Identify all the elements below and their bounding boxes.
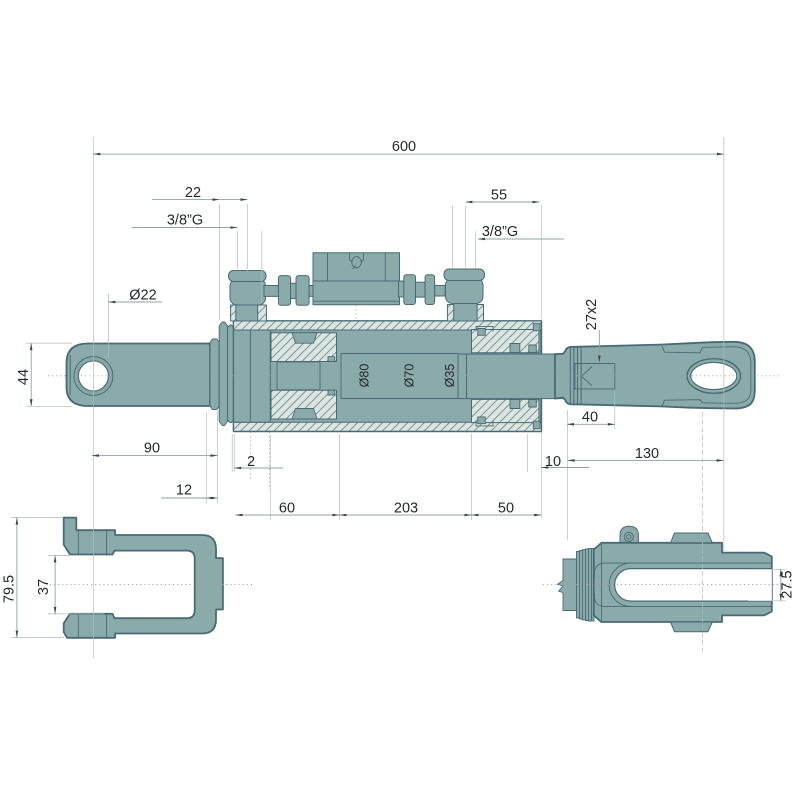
svg-text:22: 22 [185, 185, 201, 201]
svg-text:44: 44 [16, 369, 32, 385]
svg-text:2: 2 [247, 454, 255, 470]
svg-text:3/8”G: 3/8”G [482, 224, 518, 240]
svg-text:600: 600 [392, 139, 416, 155]
svg-text:27.5: 27.5 [780, 570, 796, 598]
svg-text:130: 130 [635, 446, 659, 462]
svg-text:79.5: 79.5 [2, 575, 18, 603]
svg-text:40: 40 [582, 410, 598, 426]
svg-text:203: 203 [394, 501, 418, 517]
svg-text:Ø35: Ø35 [443, 364, 457, 388]
svg-text:50: 50 [498, 501, 514, 517]
svg-text:12: 12 [176, 483, 192, 499]
svg-text:55: 55 [491, 188, 507, 204]
svg-text:60: 60 [279, 501, 295, 517]
svg-text:3/8”G: 3/8”G [167, 213, 203, 229]
svg-text:90: 90 [144, 441, 160, 457]
svg-text:37: 37 [36, 579, 52, 595]
svg-text:Ø70: Ø70 [403, 364, 417, 388]
svg-text:Ø22: Ø22 [129, 288, 156, 304]
svg-text:10: 10 [545, 454, 561, 470]
svg-text:Ø80: Ø80 [358, 364, 372, 388]
svg-text:27x2: 27x2 [584, 299, 600, 330]
